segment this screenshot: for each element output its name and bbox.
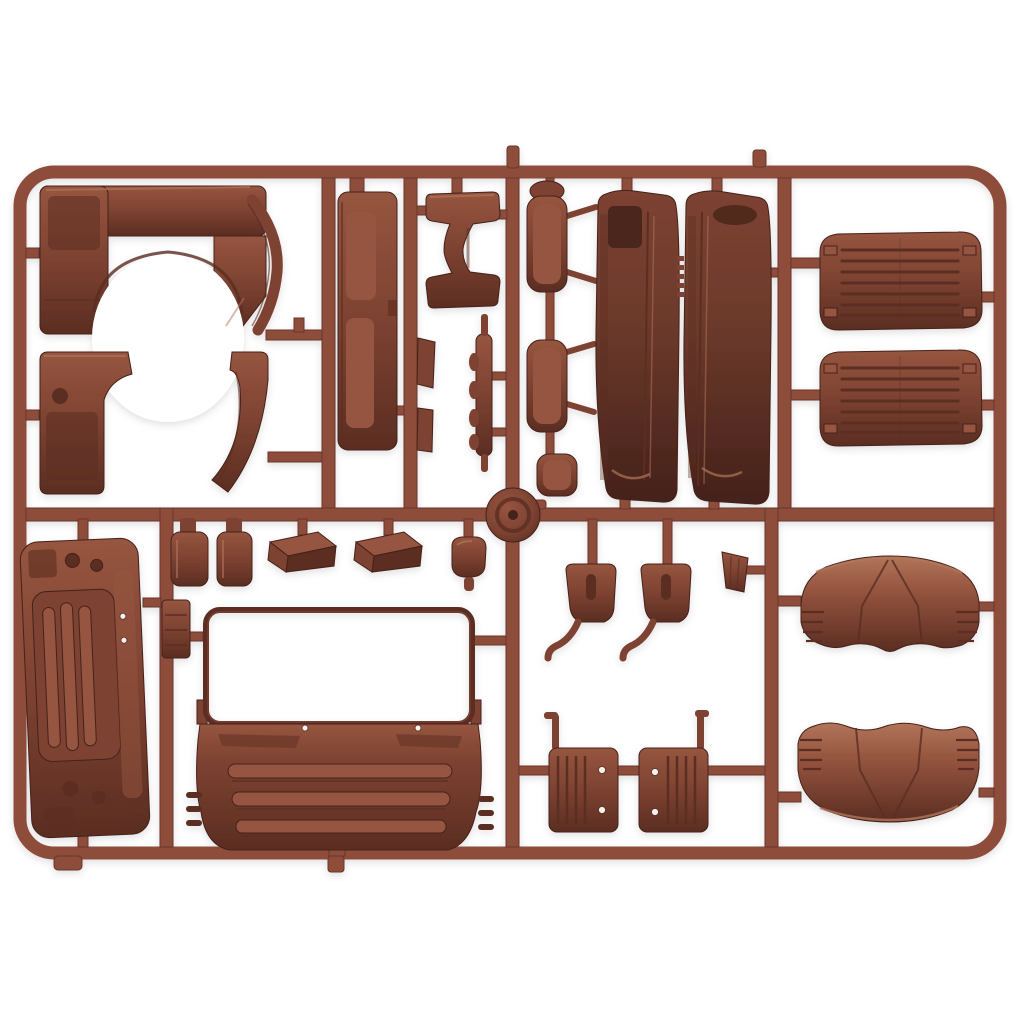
sprue-junction-disc (486, 488, 540, 542)
leaf-spring-part (469, 314, 492, 472)
pillar-bracket (162, 600, 190, 658)
cover-ribs (42, 602, 96, 752)
grille-slats (228, 764, 452, 836)
side-mirror-housing-1 (527, 181, 596, 292)
cab-front-panel-with-windshield-frame (186, 610, 494, 850)
wheel-arch-panel-lower (40, 352, 132, 494)
mud-flap-2 (639, 710, 709, 832)
step-bracket-1 (548, 564, 616, 658)
cab-door-panel-left (596, 190, 684, 502)
runner-vertical-2 (404, 178, 417, 521)
air-intake-funnel (722, 552, 748, 592)
entry-step-2 (354, 532, 422, 572)
cab-door-panel-right (684, 191, 771, 504)
runner-vertical-4 (778, 178, 791, 521)
seat-back-panel-1 (171, 519, 208, 586)
step-bracket-2 (623, 564, 691, 658)
sprue-photo (0, 0, 1024, 1024)
side-mirror-housing-2 (527, 340, 594, 432)
wide-angle-mirror-housing (537, 454, 577, 496)
seat-back-panel-2 (217, 519, 252, 586)
roof-deflector-panel-upper (801, 556, 979, 652)
seat-base-frame (426, 192, 500, 308)
roof-deflector-panel-lower (798, 723, 979, 822)
engine-access-cover (20, 538, 151, 839)
lamp-housing-cover (452, 537, 486, 591)
runner-vertical-1 (322, 178, 335, 521)
side-mirror-parts (527, 178, 596, 496)
windshield-frame (206, 610, 472, 724)
product-photo (0, 0, 1024, 1024)
engine-hatch-ribbed-panel-2 (820, 350, 982, 446)
rocker-sill-panel (338, 178, 397, 450)
runner-vertical-6 (765, 508, 778, 847)
mud-flap-1 (544, 712, 618, 832)
small-strip-parts (417, 338, 435, 452)
engine-hatch-ribbed-panel-1 (820, 232, 982, 330)
entry-step-1 (268, 532, 336, 572)
